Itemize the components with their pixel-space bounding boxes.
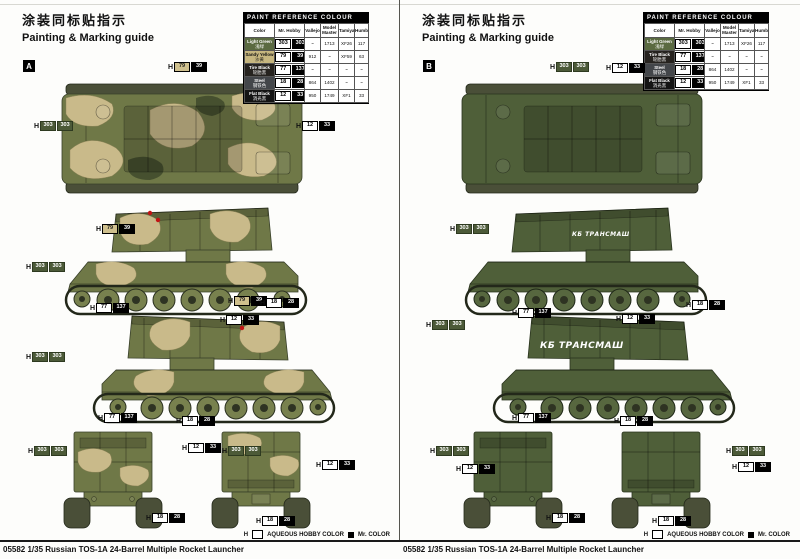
paint-callout-H12-33: H1233 [606,63,645,73]
paint-row: Steel钢铁色H18288641402~~ [645,63,769,76]
model-master-cell: 1402 [721,63,739,76]
mr-color-square-icon [748,532,754,538]
mr-color-number-box: 28 [569,513,585,523]
model-master-cell: ~ [721,50,739,63]
model-master-cell: 1713 [321,37,339,50]
paint-callout-H12-33: H1233 [316,460,355,470]
aqueous-number-box: 77 [518,413,534,423]
aqueous-number-box: 77 [518,308,534,318]
h-prefix: H [732,464,737,471]
aqueous-number-box: 303 [275,39,291,49]
paint-callout-H12-33: H1233 [296,121,335,131]
column-header: Vallejo [305,24,321,38]
mr-color-number-box: 28 [675,516,691,526]
mr-color-square-icon [348,532,354,538]
paint-callout-H12-33: H1233 [456,464,495,474]
aqueous-number-box: 77 [104,413,120,423]
vallejo-cell: ~ [705,37,721,50]
paint-callout-H79-39: H7939 [96,224,135,234]
vallejo-cell: ~ [305,37,321,50]
vallejo-cell: 864 [705,63,721,76]
aqueous-number-box: 303 [556,62,572,72]
side-view-right [94,316,334,422]
paint-table-body: Light Green浅绿H303303~1713XF26117Sandy Ye… [245,37,369,103]
h-prefix: H [96,226,101,233]
mr-hobby-cell: H1233 [275,90,305,103]
mr-color-number-box: 303 [573,62,589,72]
h-prefix: H [146,515,151,522]
aqueous-number-box: 12 [462,464,478,474]
column-header: Humbrol [355,24,369,38]
scheme-label-a: A [23,60,35,72]
paint-row: Sandy Yellow沙黄H7939912~XF5963 [245,50,369,63]
paint-callout-H77-137: H77137 [90,303,129,313]
paint-callout-H77-137: H77137 [512,413,551,423]
tamiya-cell: XF26 [339,37,355,50]
mr-color-number-box: 33 [339,460,355,470]
aqueous-number-box: 18 [658,516,674,526]
mr-color-number-box: 137 [292,65,304,75]
aqueous-number-box: 18 [692,300,708,310]
mr-hobby-cell: H303303 [675,37,705,50]
legend-aqueous-label: AQUEOUS HOBBY COLOR [667,532,744,538]
mr-color-number-box: 33 [629,63,645,73]
paint-callout-H18-28: H1828 [176,416,215,426]
product-title: 05582 1/35 Russian TOS-1A 24-Barrel Mult… [3,545,244,554]
mr-color-number-box: 33 [755,462,771,472]
aqueous-number-box: 77 [96,303,112,313]
mr-hobby-codes: H1828 [675,65,704,75]
paint-callout-H303-303: H303303 [26,352,65,362]
vallejo-cell: ~ [705,50,721,63]
paint-callout-H18-28: H1828 [614,416,653,426]
mr-color-number-box: 33 [639,314,655,324]
color-name-zh: 浅绿 [245,44,274,49]
aqueous-number-box: 18 [620,416,636,426]
top-view [462,84,702,193]
column-header: Tamiya [339,24,355,38]
h-prefix: H [316,462,321,469]
mr-color-number-box: 303 [292,39,304,49]
aqueous-number-box: 12 [302,121,318,131]
side-view-left [466,208,706,314]
mr-color-number-box: 137 [692,52,704,62]
mr-color-number-box: 33 [292,91,304,101]
h-prefix: H [550,64,555,71]
h-prefix: H [182,445,187,452]
color-name-zh: 消光黑 [645,83,674,88]
aqueous-number-box: 18 [675,65,691,75]
paint-row: Light Green浅绿H303303~1713XF26117 [245,37,369,50]
h-prefix: H [512,310,517,317]
model-master-cell: ~ [321,63,339,76]
h-prefix: H [26,264,31,271]
mr-color-number-box: 303 [692,39,704,49]
paint-callout-H303-303: H303303 [26,262,65,272]
mr-hobby-codes: H7939 [275,52,304,62]
mr-color-number-box: 33 [319,121,335,131]
paint-callout-H303-303: H303303 [430,446,469,456]
h-prefix: H [614,418,619,425]
color-name-en: Tire Black [645,52,674,57]
h-prefix: H [26,354,31,361]
aqueous-number-box: 12 [675,78,691,88]
aqueous-number-box: 303 [732,446,748,456]
color-swatch-cell: Steel钢铁色 [245,76,275,89]
mr-hobby-cell: H7939 [275,50,305,63]
vallejo-cell: 912 [305,50,321,63]
color-swatch-cell: Tire Black轮胎黑 [645,50,675,63]
paint-table-body: Light Green浅绿H303303~1713XF26117Tire Bla… [645,37,769,90]
legend-h-prefix: H [644,532,648,538]
aqueous-number-box: 18 [266,298,282,308]
color-name-zh: 钢铁色 [245,83,274,88]
color-name-zh: 沙黄 [245,57,274,62]
aqueous-number-box: 303 [436,446,452,456]
mr-color-number-box: 303 [453,446,469,456]
aqueous-number-box: 12 [622,314,638,324]
paint-row: Steel钢铁色H18288641402~~ [245,76,369,89]
paint-callout-H18-28: H1828 [146,513,185,523]
mr-color-number-box: 28 [199,416,215,426]
mr-color-number-box: 39 [191,62,207,72]
color-name-en: Light Green [245,39,274,44]
paint-reference-table: PAINT REFERENCE COLOUR ColorMr. HobbyVal… [643,12,769,91]
h-prefix: H [430,448,435,455]
mr-color-number-box: 33 [243,315,259,325]
paint-callout-H18-28: H1828 [256,516,295,526]
scheme-label-b: B [423,60,435,72]
aqueous-number-box: 303 [32,352,48,362]
color-swatch-cell: Flat Black消光黑 [245,90,275,103]
paint-table-header-row: ColorMr. HobbyVallejoModel MasterTamiyaH… [245,24,369,38]
tamiya-cell: ~ [339,76,355,89]
h-prefix: H [512,415,517,422]
h-prefix: H [616,316,621,323]
aqueous-number-box: 12 [738,462,754,472]
mr-color-number-box: 303 [49,352,65,362]
h-prefix: H [220,317,225,324]
paint-callout-H12-33: H1233 [220,315,259,325]
aqueous-number-box: 79 [275,52,291,62]
instruction-sheet: КБ ТРАНСМАШ КБ ТРАНСМАШ [0,0,800,559]
bottom-rule [0,540,800,542]
mr-hobby-codes: H77137 [675,52,704,62]
paint-callout-H12-33: H1233 [732,462,771,472]
tamiya-cell: ~ [739,50,755,63]
page-header: 涂装同标贴指示 Painting & Marking guide [422,10,554,44]
model-master-cell: 1749 [721,76,739,89]
h-prefix: H [28,448,33,455]
mr-color-number-box: 39 [119,224,135,234]
aqueous-number-box: 303 [34,446,50,456]
page-header: 涂装同标贴指示 Painting & Marking guide [22,10,154,44]
vallejo-cell: 950 [705,76,721,89]
page-b: КБ ТРАНСМАШ КБ ТРАНСМАШ [400,0,800,559]
paint-callout-H303-303: H303303 [426,320,465,330]
mr-color-number-box: 137 [113,303,129,313]
color-name-zh: 轮胎黑 [245,70,274,75]
aqueous-number-box: 18 [152,513,168,523]
humbrol-cell: 33 [355,90,369,103]
h-prefix: H [34,123,39,130]
column-header: Model Master [321,24,339,38]
tamiya-cell: XF1 [339,90,355,103]
mr-hobby-codes: H1233 [675,78,704,88]
mr-color-number-box: 303 [245,446,261,456]
column-header: Color [645,24,675,38]
paint-callout-H303-303: H303303 [550,62,589,72]
mr-color-number-box: 33 [479,464,495,474]
mr-color-number-box: 303 [49,262,65,272]
h-prefix: H [176,418,181,425]
paint-row: Flat Black消光黑H12339501749XF133 [645,76,769,89]
aqueous-number-box: 12 [188,443,204,453]
aqueous-number-box: 18 [275,78,291,88]
color-swatch-cell: Flat Black消光黑 [645,76,675,89]
paint-reference-table: PAINT REFERENCE COLOUR ColorMr. HobbyVal… [243,12,369,104]
tamiya-cell: XF26 [739,37,755,50]
paint-table-title: PAINT REFERENCE COLOUR [644,13,768,23]
title-chinese: 涂装同标贴指示 [422,10,554,29]
tamiya-cell: XF59 [339,50,355,63]
aqueous-number-box: 79 [174,62,190,72]
humbrol-cell: ~ [755,50,769,63]
h-prefix: H [546,515,551,522]
color-name-en: Sandy Yellow [245,52,274,57]
humbrol-cell: 117 [755,37,769,50]
mr-color-number-box: 28 [292,78,304,88]
humbrol-cell: ~ [355,76,369,89]
aqueous-number-box: 18 [262,516,278,526]
h-prefix: H [296,123,301,130]
mr-hobby-cell: H1828 [675,63,705,76]
color-swatch-cell: Steel钢铁色 [645,63,675,76]
color-name-zh: 轮胎黑 [645,57,674,62]
model-master-cell: 1713 [721,37,739,50]
h-prefix: H [456,466,461,473]
h-prefix: H [652,518,657,525]
mr-hobby-codes: H1233 [275,91,304,101]
product-title: 05582 1/35 Russian TOS-1A 24-Barrel Mult… [403,545,644,554]
mr-hobby-cell: H1828 [275,76,305,89]
paint-callout-H303-303: H303303 [726,446,765,456]
paint-row: Light Green浅绿H303303~1713XF26117 [645,37,769,50]
aqueous-number-box: 12 [322,460,338,470]
title-chinese: 涂装同标贴指示 [22,10,154,29]
aqueous-number-box: 303 [432,320,448,330]
mr-color-number-box: 137 [121,413,137,423]
paint-callout-H12-33: H1233 [616,314,655,324]
paint-legend: H AQUEOUS HOBBY COLOR Mr. COLOR [644,530,790,539]
h-prefix: H [606,65,611,72]
model-master-cell: ~ [321,50,339,63]
aqueous-number-box: 12 [226,315,242,325]
column-header: Mr. Hobby [275,24,305,38]
mr-color-number-box: 33 [692,78,704,88]
legend-h-prefix: H [244,532,248,538]
tamiya-cell: XF1 [739,76,755,89]
aqueous-number-box: 18 [182,416,198,426]
paint-table-header-row: ColorMr. HobbyVallejoModel MasterTamiyaH… [645,24,769,38]
side-view-right [494,316,734,422]
h-prefix: H [450,226,455,233]
mr-color-number-box: 303 [449,320,465,330]
mr-color-number-box: 137 [535,308,551,318]
h-prefix: H [228,298,233,305]
mr-color-number-box: 303 [57,121,73,131]
aqueous-number-box: 303 [675,39,691,49]
paint-legend: H AQUEOUS HOBBY COLOR Mr. COLOR [244,530,390,539]
paint-callout-H77-137: H77137 [98,413,137,423]
color-name-zh: 浅绿 [645,44,674,49]
mr-color-number-box: 39 [292,52,304,62]
mr-color-number-box: 33 [205,443,221,453]
column-header: Color [245,24,275,38]
mr-color-number-box: 28 [692,65,704,75]
vallejo-cell: 864 [305,76,321,89]
paint-callout-H303-303: H303303 [34,121,73,131]
paint-row: Flat Black消光黑H12339501749XF133 [245,90,369,103]
h-prefix: H [260,300,265,307]
aqueous-number-box: 303 [40,121,56,131]
paint-callout-H18-28: H1828 [686,300,725,310]
aqueous-box-icon [252,530,263,539]
model-master-cell: 1402 [321,76,339,89]
aqueous-number-box: 79 [234,296,250,306]
h-prefix: H [686,302,691,309]
h-prefix: H [90,305,95,312]
aqueous-number-box: 77 [275,65,291,75]
color-name-zh: 钢铁色 [645,70,674,75]
mr-color-number-box: 28 [279,516,295,526]
h-prefix: H [168,64,173,71]
mr-hobby-cell: H77137 [675,50,705,63]
legend-aqueous-label: AQUEOUS HOBBY COLOR [267,532,344,538]
page-divider [399,0,400,541]
color-swatch-cell: Light Green浅绿 [645,37,675,50]
vallejo-cell: 950 [305,90,321,103]
humbrol-cell: 33 [755,76,769,89]
aqueous-number-box: 303 [228,446,244,456]
aqueous-number-box: 79 [102,224,118,234]
h-prefix: H [426,322,431,329]
hull-text-side-large: КБ ТРАНСМАШ [540,341,624,351]
column-header: Humbrol [755,24,769,38]
paint-callout-H79-39: H7939 [168,62,207,72]
page-a: КБ ТРАНСМАШ КБ ТРАНСМАШ [0,0,400,559]
mr-hobby-codes: H1828 [275,78,304,88]
paint-callout-H77-137: H77137 [512,308,551,318]
h-prefix: H [222,448,227,455]
legend-mr-color-label: Mr. COLOR [358,532,390,538]
h-prefix: H [726,448,731,455]
tamiya-cell: ~ [739,63,755,76]
mr-hobby-codes: H77137 [275,65,304,75]
paint-row: Tire Black轮胎黑H77137~~~~ [245,63,369,76]
color-swatch-cell: Light Green浅绿 [245,37,275,50]
paint-callout-H18-28: H1828 [652,516,691,526]
h-prefix: H [98,415,103,422]
paint-callout-H303-303: H303303 [28,446,67,456]
aqueous-number-box: 12 [275,91,291,101]
humbrol-cell: ~ [355,63,369,76]
column-header: Tamiya [739,24,755,38]
paint-callout-H12-33: H1233 [182,443,221,453]
column-header: Model Master [721,24,739,38]
aqueous-number-box: 12 [612,63,628,73]
mr-hobby-cell: H1233 [675,76,705,89]
mr-color-number-box: 28 [283,298,299,308]
humbrol-cell: 117 [355,37,369,50]
model-master-cell: 1749 [321,90,339,103]
mr-hobby-codes: H303303 [275,39,304,49]
color-swatch-cell: Sandy Yellow沙黄 [245,50,275,63]
vallejo-cell: ~ [305,63,321,76]
color-swatch-cell: Tire Black轮胎黑 [245,63,275,76]
title-english: Painting & Marking guide [422,32,554,44]
mr-hobby-codes: H303303 [675,39,704,49]
mr-color-number-box: 28 [709,300,725,310]
paint-callout-H303-303: H303303 [450,224,489,234]
paint-table-title: PAINT REFERENCE COLOUR [244,13,368,23]
hull-text-side: КБ ТРАНСМАШ [572,231,630,238]
mr-color-number-box: 28 [637,416,653,426]
aqueous-box-icon [652,530,663,539]
column-header: Mr. Hobby [675,24,705,38]
aqueous-number-box: 303 [456,224,472,234]
column-header: Vallejo [705,24,721,38]
paint-callout-H18-28: H1828 [546,513,585,523]
rear-view [612,432,710,528]
mr-hobby-cell: H303303 [275,37,305,50]
mr-color-number-box: 137 [535,413,551,423]
humbrol-cell: 63 [355,50,369,63]
humbrol-cell: ~ [755,63,769,76]
aqueous-number-box: 77 [675,52,691,62]
h-prefix: H [256,518,261,525]
title-english: Painting & Marking guide [22,32,154,44]
aqueous-number-box: 18 [552,513,568,523]
mr-hobby-cell: H77137 [275,63,305,76]
paint-row: Tire Black轮胎黑H77137~~~~ [645,50,769,63]
paint-callout-H18-28: H1828 [260,298,299,308]
mr-color-number-box: 303 [51,446,67,456]
tamiya-cell: ~ [339,63,355,76]
legend-mr-color-label: Mr. COLOR [758,532,790,538]
aqueous-number-box: 303 [32,262,48,272]
mr-color-number-box: 303 [473,224,489,234]
mr-color-number-box: 303 [749,446,765,456]
color-name-zh: 消光黑 [245,96,274,101]
color-name-en: Light Green [645,39,674,44]
paint-callout-H303-303: H303303 [222,446,261,456]
mr-color-number-box: 28 [169,513,185,523]
